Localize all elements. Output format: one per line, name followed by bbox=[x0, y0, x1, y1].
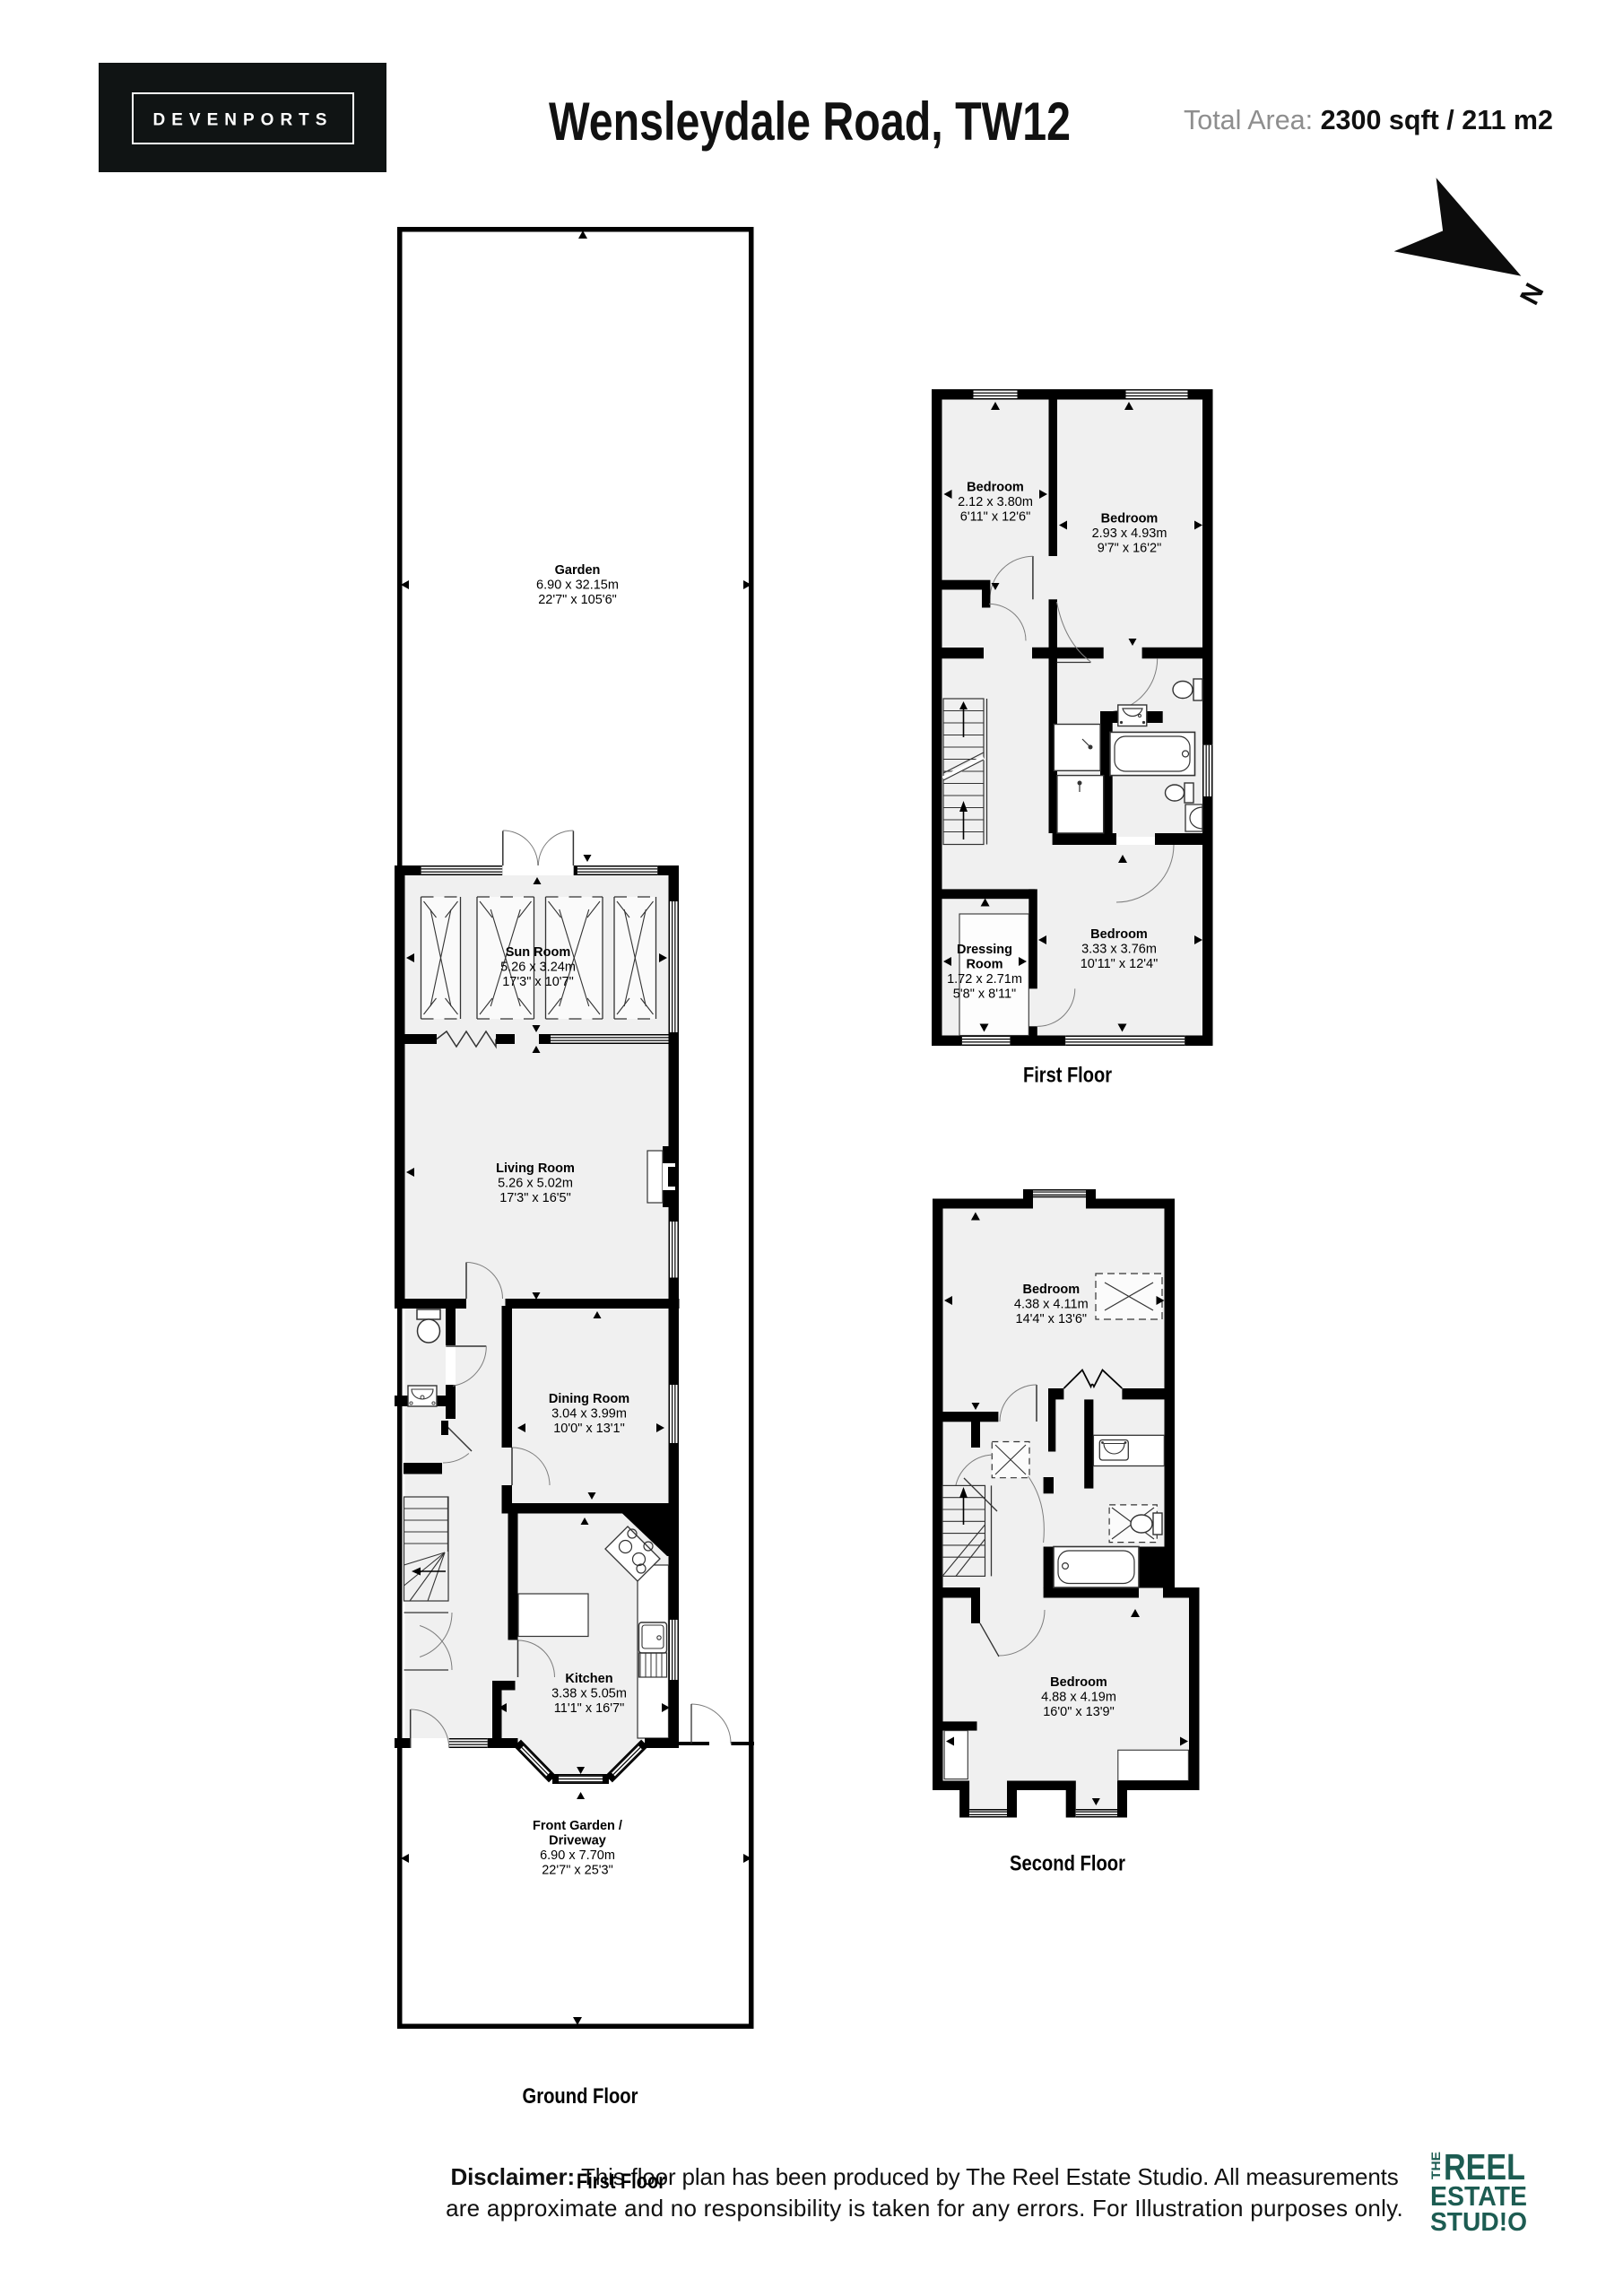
svg-text:Driveway: Driveway bbox=[549, 1834, 606, 1848]
svg-text:Sun Room: Sun Room bbox=[506, 945, 571, 960]
svg-text:22'7" x 25'3": 22'7" x 25'3" bbox=[542, 1864, 613, 1878]
svg-text:5.26 x 3.24m: 5.26 x 3.24m bbox=[500, 961, 576, 975]
svg-text:are approximate and no respons: are approximate and no responsibility is… bbox=[446, 2195, 1403, 2222]
svg-text:N: N bbox=[1514, 278, 1549, 309]
svg-text:10'11" x 12'4": 10'11" x 12'4" bbox=[1081, 957, 1159, 971]
svg-text:2.12 x 3.80m: 2.12 x 3.80m bbox=[958, 495, 1033, 509]
svg-text:Bedroom: Bedroom bbox=[967, 481, 1024, 495]
svg-text:10'0" x 13'1": 10'0" x 13'1" bbox=[553, 1422, 625, 1436]
svg-text:Living Room: Living Room bbox=[496, 1161, 575, 1176]
svg-text:Ground Floor: Ground Floor bbox=[523, 2084, 638, 2109]
svg-text:THE: THE bbox=[1429, 2152, 1443, 2179]
svg-text:9'7" x 16'2": 9'7" x 16'2" bbox=[1098, 542, 1161, 556]
svg-text:First Floor: First Floor bbox=[1023, 1064, 1112, 1088]
svg-text:2.93 x 4.93m: 2.93 x 4.93m bbox=[1092, 526, 1167, 541]
svg-text:Front Garden /: Front Garden / bbox=[533, 1819, 622, 1833]
svg-text:First Floor: First Floor bbox=[577, 2170, 665, 2194]
svg-text:Bedroom: Bedroom bbox=[1022, 1283, 1080, 1297]
svg-text:STUD!O: STUD!O bbox=[1430, 2208, 1527, 2237]
svg-text:6.90 x 32.15m: 6.90 x 32.15m bbox=[536, 578, 619, 593]
svg-text:5.26 x 5.02m: 5.26 x 5.02m bbox=[498, 1177, 573, 1191]
svg-text:16'0" x 13'9": 16'0" x 13'9" bbox=[1043, 1705, 1115, 1719]
svg-text:DEVENPORTS: DEVENPORTS bbox=[153, 111, 334, 130]
svg-text:Kitchen: Kitchen bbox=[565, 1672, 612, 1686]
svg-text:Total Area: 2300 sqft / 211 m2: Total Area: 2300 sqft / 211 m2 bbox=[1184, 105, 1553, 135]
svg-text:Bedroom: Bedroom bbox=[1050, 1675, 1107, 1690]
svg-text:5'8" x 8'11": 5'8" x 8'11" bbox=[953, 987, 1016, 1002]
svg-text:3.38 x 5.05m: 3.38 x 5.05m bbox=[551, 1687, 627, 1701]
svg-text:ESTATE: ESTATE bbox=[1430, 2180, 1527, 2212]
svg-text:Second Floor: Second Floor bbox=[1010, 1852, 1125, 1876]
svg-text:Wensleydale Road, TW12: Wensleydale Road, TW12 bbox=[549, 91, 1071, 152]
svg-text:4.38 x 4.11m: 4.38 x 4.11m bbox=[1014, 1298, 1089, 1312]
svg-text:1.72 x 2.71m: 1.72 x 2.71m bbox=[947, 972, 1022, 987]
svg-text:6'11" x 12'6": 6'11" x 12'6" bbox=[960, 510, 1030, 525]
svg-text:Dressing: Dressing bbox=[957, 943, 1012, 957]
svg-text:4.88 x 4.19m: 4.88 x 4.19m bbox=[1041, 1691, 1116, 1705]
svg-text:6.90 x 7.70m: 6.90 x 7.70m bbox=[540, 1848, 615, 1863]
svg-text:14'4" x 13'6": 14'4" x 13'6" bbox=[1016, 1312, 1088, 1326]
svg-text:Bedroom: Bedroom bbox=[1101, 512, 1159, 526]
svg-text:17'3" x 10'7": 17'3" x 10'7" bbox=[502, 975, 574, 989]
svg-text:Garden: Garden bbox=[555, 563, 601, 578]
svg-text:3.33 x 3.76m: 3.33 x 3.76m bbox=[1081, 943, 1157, 957]
svg-text:Bedroom: Bedroom bbox=[1090, 927, 1148, 942]
svg-text:Dining Room: Dining Room bbox=[549, 1392, 629, 1406]
svg-text:3.04 x 3.99m: 3.04 x 3.99m bbox=[551, 1407, 627, 1422]
svg-text:22'7" x 105'6": 22'7" x 105'6" bbox=[538, 593, 617, 607]
svg-text:11'1" x 16'7": 11'1" x 16'7" bbox=[554, 1701, 624, 1716]
svg-text:17'3" x 16'5": 17'3" x 16'5" bbox=[499, 1191, 571, 1205]
svg-text:Room: Room bbox=[966, 958, 1002, 972]
